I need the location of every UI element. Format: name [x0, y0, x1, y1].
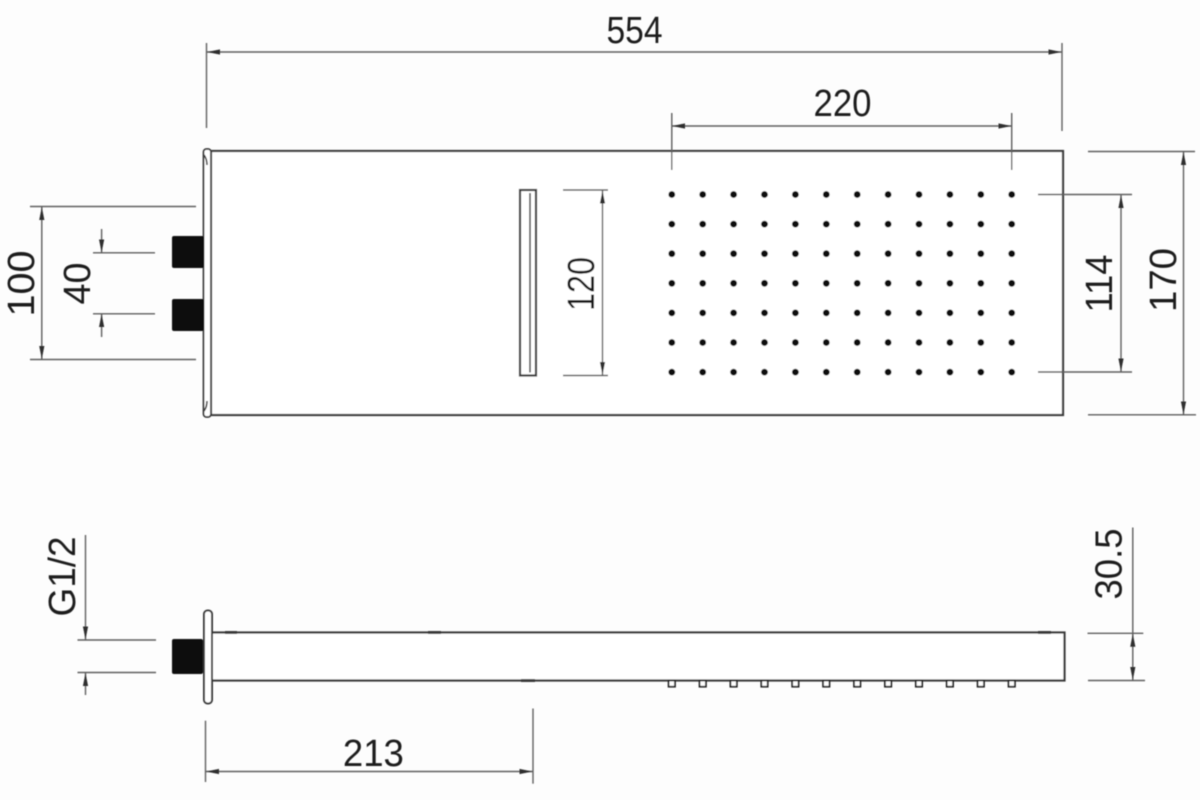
svg-text:213: 213 — [343, 733, 404, 775]
svg-text:30.5: 30.5 — [1088, 529, 1130, 600]
svg-text:220: 220 — [814, 83, 872, 125]
svg-text:554: 554 — [607, 10, 663, 52]
svg-text:40: 40 — [57, 263, 99, 305]
svg-text:120: 120 — [561, 257, 603, 311]
svg-text:114: 114 — [1079, 255, 1121, 313]
svg-text:100: 100 — [1, 251, 43, 317]
svg-text:170: 170 — [1143, 248, 1185, 312]
svg-text:G1/2: G1/2 — [42, 537, 84, 617]
